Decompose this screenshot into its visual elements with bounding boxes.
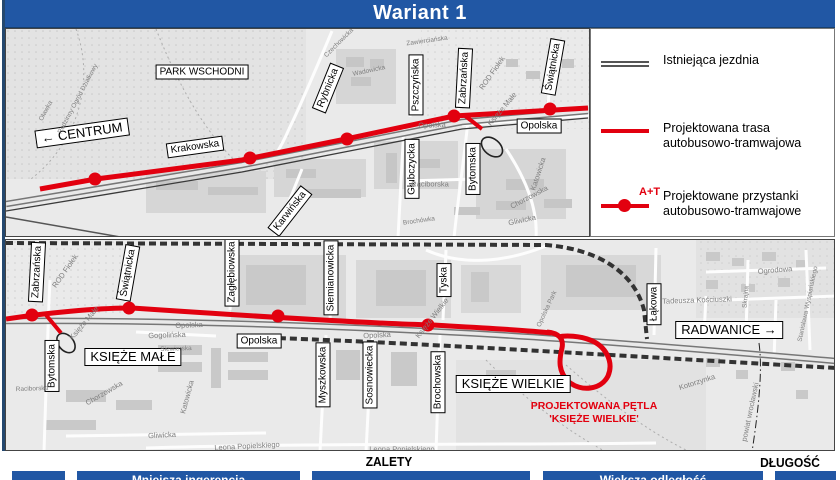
maptext-raciborska-b: Raciborska	[16, 385, 49, 393]
direction-label-radwanice: RADWANICE →	[675, 321, 783, 339]
advantage-bar-3	[312, 471, 530, 480]
annotation-petla-line2: 'KSIĘŻE WIELKIE'	[549, 413, 639, 425]
advantage-bar-4: Większa odległość	[543, 471, 763, 480]
dlugosc-heading: DŁUGOŚĆ	[760, 455, 820, 470]
street-label-pszczynska: Pszczyńska	[409, 55, 424, 116]
annotation-petla-line1: PROJEKTOWANA PĘTLA	[531, 400, 658, 412]
legend-box: Istniejąca jezdnia Projektowana trasa au…	[590, 28, 835, 237]
street-label-tyska: Tyska	[437, 263, 452, 297]
zalety-heading: ZALETY	[366, 454, 413, 469]
maptext-opolska-road-1: Opolska	[175, 320, 203, 330]
street-label-sosnowiecka: Sosnowiecka	[363, 342, 378, 409]
maptext-gogolinska: Gogolińska	[148, 330, 186, 340]
map-panel-top: PARK WSCHODNI← CENTRUMKrakowskaRybnickaK…	[5, 28, 590, 237]
map-panel-bottom: ZabrzańskaŚwiątnickaZagłębiowskaSiemiano…	[5, 239, 835, 451]
advantage-bar-2: Mniejsza ingerencja	[77, 471, 300, 480]
area-label-ksieze-wielkie: KSIĘŻE WIELKIE	[456, 375, 571, 393]
advantage-bar-1	[12, 471, 65, 480]
street-label-myszkowska: Myszkowska	[316, 343, 331, 408]
street-label-opolska: Opolska	[517, 119, 562, 134]
maptext-siewierska: Siewierska	[160, 345, 192, 353]
legend-label: Projektowana trasa autobusowo-tramwajowa	[663, 121, 828, 151]
street-label-zabrzanska: Zabrzańska	[455, 48, 473, 109]
street-label-opolska-b: Opolska	[237, 334, 282, 349]
street-label-glubczycka: Głubczycka	[405, 139, 420, 199]
planned-route-symbol	[601, 129, 649, 133]
advantage-bar-5	[775, 471, 836, 480]
stop-symbol-text: A+T	[639, 186, 660, 198]
street-label-siemianowicka: Siemianowicka	[324, 241, 339, 316]
legend-label: Projektowane przystanki autobusowo-tramw…	[663, 189, 828, 219]
area-label-park-wschodni: PARK WSCHODNI	[156, 65, 249, 80]
street-label-brochowska: Brochowska	[431, 351, 446, 413]
street-label-bytomska: Bytomska	[466, 143, 481, 195]
maptext-opolska-road: Opolska	[418, 120, 446, 130]
existing-road-symbol	[601, 61, 649, 67]
variant-map-poster: Wariant 1	[0, 0, 840, 480]
street-label-zaglebiowska: Zagłębiowska	[225, 239, 240, 307]
stop-dot-icon	[618, 199, 631, 212]
page-title: Wariant 1	[373, 2, 467, 25]
title-banner: Wariant 1	[5, 0, 835, 29]
street-label-lakowa: Łąkowa	[647, 283, 662, 325]
maptext-opolska-road-2: Opolska	[363, 330, 391, 340]
planned-stop-symbol: A+T	[601, 195, 649, 215]
legend-label: Istniejąca jezdnia	[663, 53, 828, 68]
street-label-zabrzanska-b: Zabrzańska	[28, 242, 46, 303]
maptext-raciborska: Raciborska	[411, 180, 449, 189]
maptext-gliwicka-b: Gliwicka	[148, 430, 176, 440]
